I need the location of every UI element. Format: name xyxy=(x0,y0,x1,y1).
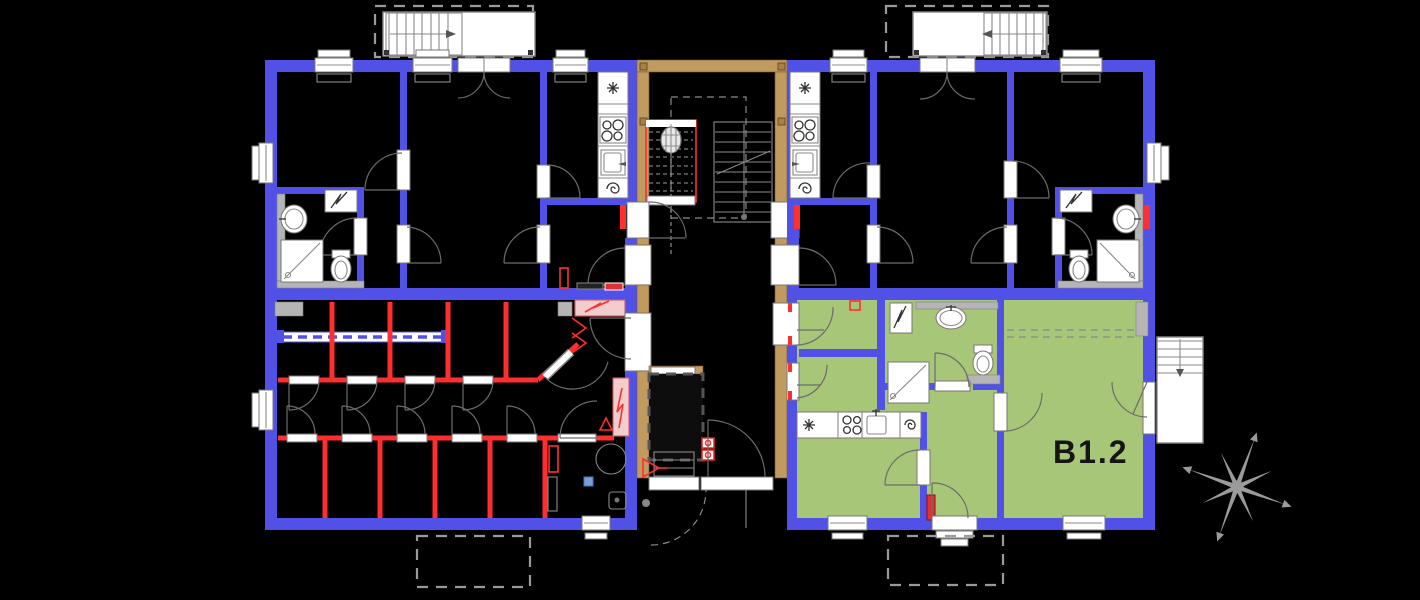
floor-plan-canvas: B1.2 xyxy=(0,0,1420,600)
toilet-icon xyxy=(973,351,993,375)
door-opening xyxy=(397,150,410,190)
window-sill xyxy=(318,50,350,57)
kitchen-right xyxy=(790,72,820,198)
external-stair xyxy=(1157,337,1203,443)
toilet-icon xyxy=(331,256,351,282)
kitchen-b12 xyxy=(797,409,921,438)
floor-plan: B1.2 xyxy=(0,0,1420,600)
unit-label: B1.2 xyxy=(1053,434,1129,470)
electric-panel xyxy=(575,300,625,316)
toilet-icon xyxy=(1069,256,1089,282)
background xyxy=(0,0,1420,600)
exterior-door xyxy=(932,516,977,530)
water-heater-icon xyxy=(890,303,912,333)
unit-b12: B1.2 xyxy=(773,300,1155,546)
balcony-stairs-left xyxy=(375,6,535,57)
entrance-door xyxy=(701,477,773,490)
window xyxy=(1136,302,1148,336)
water-heater-icon xyxy=(325,190,357,212)
kitchen-left xyxy=(598,72,628,198)
water-heater-icon xyxy=(1060,190,1092,212)
